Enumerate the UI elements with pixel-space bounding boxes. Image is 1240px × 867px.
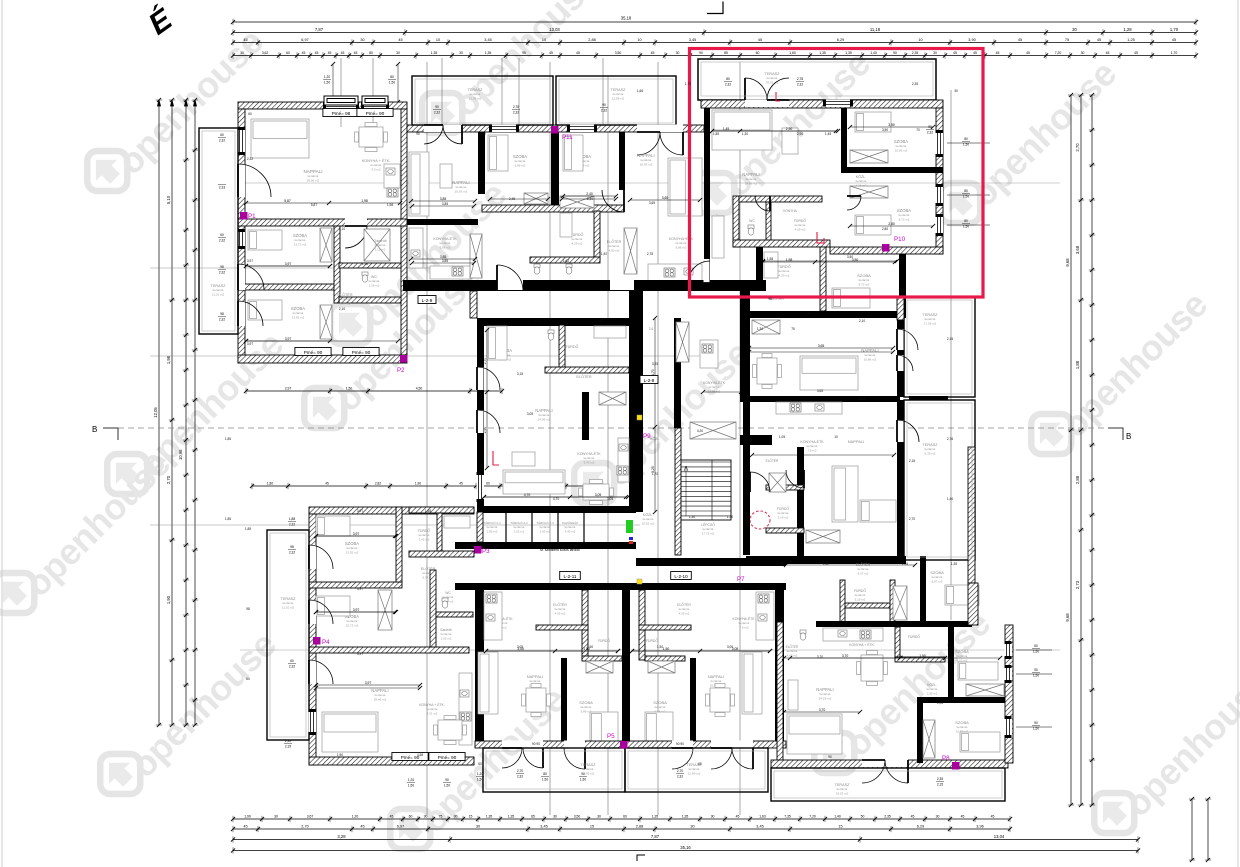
- svg-text:2,32: 2,32: [289, 665, 295, 669]
- svg-text:28,46 m2: 28,46 m2: [374, 697, 387, 701]
- svg-text:8,31 m2: 8,31 m2: [427, 711, 438, 715]
- svg-text:2,70: 2,70: [909, 517, 915, 521]
- svg-text:45: 45: [328, 51, 332, 55]
- svg-text:1,85: 1,85: [245, 527, 251, 531]
- svg-text:1,30: 1,30: [742, 132, 748, 136]
- svg-text:2,70: 2,70: [1075, 143, 1080, 152]
- svg-text:1,90: 1,90: [337, 753, 343, 757]
- svg-text:19,03 m2: 19,03 m2: [836, 791, 849, 795]
- svg-text:1,50: 1,50: [444, 784, 450, 788]
- svg-text:4,63 m2: 4,63 m2: [787, 653, 798, 657]
- svg-text:12,95 m2: 12,95 m2: [612, 96, 625, 100]
- svg-text:2,33: 2,33: [219, 186, 225, 190]
- svg-text:45: 45: [341, 51, 345, 55]
- svg-text:1,70: 1,70: [652, 472, 658, 476]
- svg-text:M. szintkénti közös tárolók: M. szintkénti közös tárolók: [540, 548, 580, 552]
- svg-text:1,90: 1,90: [415, 482, 421, 486]
- svg-text:45: 45: [973, 51, 977, 55]
- svg-text:80: 80: [543, 772, 547, 776]
- svg-text:Pmé= 90: Pmé= 90: [438, 755, 457, 760]
- svg-text:2,35: 2,35: [937, 777, 943, 781]
- svg-text:NAPPALI: NAPPALI: [848, 439, 865, 444]
- svg-text:30: 30: [459, 51, 463, 55]
- svg-text:1,15: 1,15: [362, 262, 368, 266]
- svg-text:Pmé= 90: Pmé= 90: [304, 350, 323, 355]
- svg-text:2,32: 2,32: [513, 111, 519, 115]
- svg-text:1,50: 1,50: [963, 225, 969, 229]
- svg-text:2,35: 2,35: [884, 815, 891, 819]
- svg-text:75: 75: [1065, 38, 1069, 42]
- svg-text:2,97: 2,97: [285, 387, 292, 391]
- svg-text:2,35: 2,35: [912, 82, 918, 86]
- svg-text:4,70: 4,70: [524, 493, 531, 497]
- svg-text:16,93 m2: 16,93 m2: [640, 162, 653, 166]
- svg-text:13,72 m2: 13,72 m2: [294, 242, 307, 246]
- svg-text:2,90: 2,90: [797, 132, 803, 136]
- svg-text:45: 45: [651, 51, 655, 55]
- svg-text:FÜRDŐ: FÜRDŐ: [908, 634, 920, 639]
- svg-text:29,96 m2: 29,96 m2: [745, 181, 758, 185]
- svg-text:3,05: 3,05: [527, 412, 533, 416]
- svg-text:15: 15: [838, 825, 842, 829]
- svg-text:1,10: 1,10: [339, 227, 345, 231]
- svg-text:5,87: 5,87: [284, 199, 291, 203]
- svg-text:2,76: 2,76: [947, 437, 953, 441]
- svg-text:3,15: 3,15: [517, 372, 523, 376]
- svg-text:90: 90: [482, 132, 486, 136]
- svg-text:1,45: 1,45: [723, 127, 730, 131]
- svg-text:1,20: 1,20: [408, 778, 414, 782]
- svg-text:ELŐTÉR: ELŐTÉR: [766, 458, 779, 463]
- svg-text:Pmé= 90: Pmé= 90: [366, 111, 385, 116]
- svg-text:1,50: 1,50: [542, 778, 548, 782]
- svg-text:4,29 m2: 4,29 m2: [779, 273, 790, 277]
- svg-text:3,97: 3,97: [247, 259, 253, 263]
- svg-text:1,63 m2: 1,63 m2: [540, 529, 551, 533]
- svg-text:11,01 m2: 11,01 m2: [282, 605, 295, 609]
- svg-text:2,12 m2: 2,12 m2: [375, 247, 386, 251]
- svg-text:85 10: 85 10: [496, 544, 504, 548]
- svg-text:FÜRDŐ: FÜRDŐ: [566, 344, 579, 349]
- svg-text:45: 45: [991, 815, 995, 819]
- svg-text:7,35: 7,35: [784, 815, 791, 819]
- svg-text:2,32: 2,32: [434, 111, 440, 115]
- svg-text:1,35: 1,35: [652, 815, 659, 819]
- svg-text:35,18: 35,18: [621, 16, 632, 21]
- svg-text:1,70: 1,70: [685, 82, 691, 86]
- svg-text:45: 45: [243, 38, 247, 42]
- svg-text:2,70: 2,70: [517, 769, 523, 773]
- svg-text:1,35: 1,35: [486, 815, 493, 819]
- svg-text:3,05: 3,05: [517, 645, 523, 649]
- svg-text:65: 65: [531, 815, 535, 819]
- svg-text:75: 75: [439, 815, 443, 819]
- svg-text:95: 95: [574, 544, 578, 548]
- svg-text:P4: P4: [322, 639, 330, 646]
- svg-text:1,35: 1,35: [682, 815, 689, 819]
- svg-text:12,95 m2: 12,95 m2: [688, 771, 701, 775]
- svg-text:2,70: 2,70: [677, 769, 683, 773]
- svg-text:P10: P10: [894, 236, 906, 243]
- svg-text:B: B: [92, 425, 97, 434]
- svg-text:1,50: 1,50: [663, 647, 670, 651]
- svg-text:2,02 m2: 2,02 m2: [441, 636, 452, 640]
- svg-text:Pmé= 90: Pmé= 90: [352, 350, 371, 355]
- svg-text:1,35 m2: 1,35 m2: [927, 691, 938, 695]
- svg-text:10: 10: [637, 38, 641, 42]
- svg-text:3,28: 3,28: [337, 834, 346, 839]
- svg-text:11,18: 11,18: [870, 27, 881, 32]
- svg-text:KONYHA: KONYHA: [783, 209, 797, 213]
- svg-text:30: 30: [954, 89, 958, 93]
- svg-text:70: 70: [916, 128, 920, 132]
- svg-text:2,15: 2,15: [947, 337, 953, 341]
- svg-text:3,90: 3,90: [968, 38, 975, 42]
- svg-text:98: 98: [246, 607, 250, 611]
- svg-text:1,05: 1,05: [779, 435, 785, 439]
- svg-text:60: 60: [220, 133, 224, 137]
- svg-text:30: 30: [936, 815, 940, 819]
- svg-text:P5: P5: [607, 733, 615, 740]
- svg-text:1,80: 1,80: [267, 482, 273, 486]
- svg-text:95: 95: [522, 51, 526, 55]
- svg-text:12,95 m2: 12,95 m2: [582, 771, 595, 775]
- svg-text:90: 90: [602, 103, 606, 107]
- svg-text:2,15: 2,15: [909, 459, 915, 463]
- svg-text:7,20: 7,20: [1055, 51, 1062, 55]
- svg-text:1,92: 1,92: [601, 252, 607, 256]
- svg-text:P8: P8: [942, 755, 950, 762]
- svg-text:2,32: 2,32: [517, 775, 523, 779]
- svg-text:45: 45: [390, 815, 394, 819]
- svg-text:1,35: 1,35: [431, 51, 438, 55]
- svg-text:45: 45: [1026, 51, 1030, 55]
- svg-text:2,48: 2,48: [509, 197, 515, 201]
- svg-text:13,03: 13,03: [549, 27, 560, 32]
- svg-text:3,58: 3,58: [859, 397, 865, 401]
- svg-text:1,35: 1,35: [819, 51, 826, 55]
- svg-text:1,50: 1,50: [963, 143, 969, 147]
- svg-text:1,25: 1,25: [1127, 38, 1134, 42]
- svg-text:2,35: 2,35: [912, 51, 919, 55]
- svg-text:1,60: 1,60: [789, 51, 796, 55]
- svg-text:1,88: 1,88: [289, 517, 295, 521]
- svg-text:80: 80: [369, 51, 373, 55]
- svg-text:2,80: 2,80: [888, 222, 895, 226]
- svg-text:12,95 m2: 12,95 m2: [469, 96, 482, 100]
- svg-text:L-2-9: L-2-9: [422, 298, 433, 303]
- svg-text:3,68: 3,68: [1075, 245, 1080, 254]
- svg-text:2,80: 2,80: [882, 227, 888, 231]
- svg-text:1,63: 1,63: [759, 815, 766, 819]
- svg-text:30: 30: [933, 51, 937, 55]
- svg-text:30: 30: [360, 38, 364, 42]
- svg-text:KÖZL.: KÖZL.: [650, 437, 660, 441]
- svg-text:90: 90: [445, 778, 449, 782]
- svg-text:1,70: 1,70: [1170, 27, 1179, 32]
- svg-text:15: 15: [469, 815, 473, 819]
- svg-text:90 90: 90 90: [676, 742, 684, 746]
- svg-text:45: 45: [911, 815, 915, 819]
- svg-text:60: 60: [409, 815, 413, 819]
- svg-text:1,40: 1,40: [870, 51, 877, 55]
- svg-text:1,50: 1,50: [1033, 674, 1039, 678]
- svg-text:1,50: 1,50: [657, 645, 663, 649]
- svg-text:3,70: 3,70: [842, 654, 849, 658]
- svg-text:1,50: 1,50: [919, 654, 926, 658]
- svg-text:30: 30: [1072, 27, 1077, 32]
- svg-text:1,85: 1,85: [713, 132, 719, 136]
- svg-text:98: 98: [290, 545, 294, 549]
- svg-text:1,18 m2: 1,18 m2: [369, 283, 380, 287]
- svg-text:P9: P9: [643, 433, 651, 440]
- svg-text:78,03 m2: 78,03 m2: [766, 80, 779, 84]
- svg-text:2,10: 2,10: [859, 319, 865, 323]
- svg-text:3,45: 3,45: [540, 825, 547, 829]
- svg-text:1,62 m2: 1,62 m2: [514, 529, 525, 533]
- svg-text:3,42 m2: 3,42 m2: [419, 537, 430, 541]
- svg-text:2,10: 2,10: [339, 307, 345, 311]
- svg-text:7,6 m2: 7,6 m2: [739, 625, 749, 629]
- svg-text:1,05: 1,05: [937, 701, 943, 705]
- svg-text:KONYHA + ÉTK.: KONYHA + ÉTK.: [849, 642, 875, 647]
- svg-text:3,85: 3,85: [442, 202, 448, 206]
- svg-text:90: 90: [828, 755, 832, 759]
- svg-text:30: 30: [676, 51, 680, 55]
- svg-text:75: 75: [791, 327, 795, 331]
- svg-text:3,25: 3,25: [652, 362, 658, 366]
- svg-text:1,30: 1,30: [757, 327, 763, 331]
- svg-text:3,62: 3,62: [262, 51, 269, 55]
- svg-text:90: 90: [928, 125, 932, 129]
- svg-text:1,45: 1,45: [825, 132, 831, 136]
- svg-text:60: 60: [286, 51, 290, 55]
- svg-text:3,97: 3,97: [285, 337, 292, 341]
- svg-text:1,50: 1,50: [1033, 650, 1039, 654]
- svg-text:45: 45: [1172, 38, 1176, 42]
- svg-text:4,50 m2: 4,50 m2: [609, 248, 620, 252]
- svg-text:1,62: 1,62: [823, 562, 829, 566]
- svg-text:2,40: 2,40: [587, 197, 593, 201]
- svg-text:90: 90: [699, 51, 703, 55]
- svg-text:9,3 m2: 9,3 m2: [371, 167, 381, 171]
- svg-text:3,05: 3,05: [607, 497, 613, 501]
- svg-text:1,35: 1,35: [951, 562, 957, 566]
- svg-text:3,65: 3,65: [662, 196, 669, 200]
- svg-text:1,50: 1,50: [963, 195, 969, 199]
- svg-text:FÜRDŐ: FÜRDŐ: [598, 638, 610, 643]
- svg-text:45: 45: [961, 815, 965, 819]
- svg-text:L-2-11: L-2-11: [564, 574, 577, 579]
- svg-text:3,45: 3,45: [689, 38, 696, 42]
- svg-text:60: 60: [486, 482, 490, 486]
- svg-text:8,72 m2: 8,72 m2: [859, 282, 870, 286]
- svg-text:9,86 m2: 9,86 m2: [515, 163, 526, 167]
- svg-text:1,90: 1,90: [166, 595, 171, 604]
- svg-text:3,97: 3,97: [357, 652, 363, 656]
- svg-text:1,85: 1,85: [225, 517, 231, 521]
- svg-text:55: 55: [540, 544, 544, 548]
- svg-text:15: 15: [590, 825, 594, 829]
- svg-text:2,70: 2,70: [301, 825, 308, 829]
- svg-text:12,05: 12,05: [153, 407, 158, 418]
- svg-text:45: 45: [360, 825, 364, 829]
- svg-text:90: 90: [1034, 721, 1038, 725]
- svg-text:3,50: 3,50: [615, 51, 622, 55]
- svg-text:35,16: 35,16: [680, 845, 691, 850]
- svg-text:80: 80: [964, 219, 968, 223]
- svg-text:FÜRDŐ: FÜRDŐ: [646, 638, 658, 643]
- svg-text:90: 90: [1034, 668, 1038, 672]
- svg-text:30: 30: [597, 815, 601, 819]
- svg-text:98: 98: [220, 265, 224, 269]
- svg-text:P2: P2: [397, 367, 405, 374]
- svg-text:6,35 m2: 6,35 m2: [925, 451, 936, 455]
- svg-text:3,97: 3,97: [247, 342, 253, 346]
- svg-text:2,32: 2,32: [677, 775, 683, 779]
- svg-text:45: 45: [398, 38, 402, 42]
- svg-text:10,62 m2: 10,62 m2: [642, 521, 655, 525]
- svg-text:1,70: 1,70: [651, 369, 655, 376]
- svg-text:6,86 m2: 6,86 m2: [676, 245, 687, 249]
- svg-text:80: 80: [726, 77, 730, 81]
- svg-text:2,32: 2,32: [219, 239, 225, 243]
- svg-text:1,35: 1,35: [508, 815, 515, 819]
- svg-text:10: 10: [918, 38, 922, 42]
- svg-text:3,67: 3,67: [307, 815, 314, 819]
- svg-text:45: 45: [576, 51, 580, 55]
- svg-text:1,70: 1,70: [1171, 51, 1178, 55]
- svg-text:1,62: 1,62: [563, 259, 569, 263]
- svg-text:8,72 m2: 8,72 m2: [899, 217, 910, 221]
- svg-text:1,30: 1,30: [727, 515, 733, 519]
- svg-text:30: 30: [454, 815, 458, 819]
- svg-text:4,35 m2: 4,35 m2: [679, 611, 690, 615]
- svg-text:1,80: 1,80: [805, 312, 811, 316]
- svg-text:P3: P3: [482, 548, 490, 555]
- svg-text:90: 90: [893, 51, 897, 55]
- svg-text:2,15: 2,15: [285, 745, 291, 749]
- svg-text:3,70: 3,70: [535, 319, 541, 323]
- svg-text:2,32: 2,32: [219, 271, 225, 275]
- svg-text:1,40: 1,40: [947, 497, 953, 501]
- svg-text:1,58: 1,58: [767, 257, 773, 261]
- svg-text:2,82: 2,82: [375, 482, 381, 486]
- svg-text:45: 45: [459, 482, 463, 486]
- svg-text:2,32: 2,32: [927, 131, 933, 135]
- svg-text:Pmé= 98: Pmé= 98: [332, 111, 351, 116]
- svg-text:B: B: [1126, 432, 1131, 441]
- svg-text:1,35: 1,35: [902, 562, 908, 566]
- svg-text:60: 60: [220, 233, 224, 237]
- svg-text:3,97: 3,97: [353, 608, 360, 612]
- svg-text:4,29 m2: 4,29 m2: [572, 241, 583, 245]
- svg-text:2,32: 2,32: [289, 551, 295, 555]
- svg-text:15,73 m2: 15,73 m2: [346, 623, 359, 627]
- svg-text:3,65: 3,65: [818, 344, 825, 348]
- svg-text:30: 30: [690, 825, 694, 829]
- svg-text:1,98: 1,98: [387, 203, 393, 207]
- svg-text:2,88: 2,88: [636, 825, 643, 829]
- svg-text:WC: WC: [749, 219, 755, 223]
- svg-text:1,35: 1,35: [845, 51, 852, 55]
- svg-text:3,65: 3,65: [649, 201, 655, 205]
- svg-text:2,32: 2,32: [289, 523, 295, 527]
- svg-text:45: 45: [354, 51, 358, 55]
- svg-text:85: 85: [724, 51, 728, 55]
- svg-text:60: 60: [290, 659, 294, 663]
- svg-text:30: 30: [424, 815, 428, 819]
- svg-text:1,35: 1,35: [777, 562, 783, 566]
- svg-text:2,32: 2,32: [725, 83, 731, 87]
- svg-text:6,29: 6,29: [837, 38, 844, 42]
- svg-text:45: 45: [1097, 38, 1101, 42]
- svg-text:2-6: 2-6: [649, 327, 654, 331]
- svg-text:98: 98: [220, 312, 224, 316]
- svg-text:30: 30: [1081, 51, 1085, 55]
- svg-text:1,20: 1,20: [352, 815, 359, 819]
- svg-text:3,97: 3,97: [357, 587, 363, 591]
- svg-text:1,50: 1,50: [580, 778, 586, 782]
- svg-text:7,87: 7,87: [315, 27, 324, 32]
- svg-text:6,97: 6,97: [397, 825, 404, 829]
- svg-text:3,19 m2: 3,19 m2: [778, 515, 789, 519]
- svg-text:1,28: 1,28: [1123, 27, 1132, 32]
- svg-text:2,70: 2,70: [483, 358, 487, 365]
- svg-text:30: 30: [240, 51, 244, 55]
- svg-text:6,86 m2: 6,86 m2: [440, 245, 451, 249]
- svg-text:16,86 m2: 16,86 m2: [864, 357, 877, 361]
- svg-text:3,50: 3,50: [888, 123, 895, 127]
- svg-text:3,45: 3,45: [484, 38, 491, 42]
- svg-text:P11: P11: [562, 134, 573, 141]
- svg-text:4,29 m2: 4,29 m2: [795, 227, 806, 231]
- svg-text:10: 10: [542, 38, 546, 42]
- svg-text:3,05: 3,05: [727, 645, 733, 649]
- svg-text:80: 80: [964, 189, 968, 193]
- svg-text:1,85 m2: 1,85 m2: [487, 529, 498, 533]
- svg-text:45: 45: [758, 38, 762, 42]
- svg-text:L-2-8: L-2-8: [644, 378, 655, 383]
- svg-text:30: 30: [396, 51, 400, 55]
- svg-text:9,68: 9,68: [1065, 258, 1070, 267]
- svg-text:3,70: 3,70: [817, 655, 823, 659]
- svg-text:11,01 m2: 11,01 m2: [212, 292, 225, 296]
- svg-text:3,50: 3,50: [882, 128, 888, 132]
- svg-text:4,35 m2: 4,35 m2: [555, 611, 566, 615]
- svg-text:2,90: 2,90: [786, 127, 793, 131]
- svg-text:2,32: 2,32: [247, 157, 253, 161]
- svg-text:2,90: 2,90: [483, 427, 487, 434]
- svg-text:4,20: 4,20: [697, 429, 703, 433]
- svg-text:1,85: 1,85: [225, 437, 231, 441]
- svg-text:30: 30: [553, 815, 557, 819]
- svg-text:13,04: 13,04: [994, 834, 1005, 839]
- svg-text:60: 60: [246, 677, 250, 681]
- svg-text:6,29: 6,29: [917, 825, 924, 829]
- svg-text:1,66: 1,66: [637, 89, 643, 93]
- svg-text:45: 45: [1018, 38, 1022, 42]
- svg-text:2,32: 2,32: [285, 739, 291, 743]
- svg-text:24,99 m2: 24,99 m2: [538, 417, 551, 421]
- svg-text:9,43 m2: 9,43 m2: [584, 460, 595, 464]
- svg-text:2,78: 2,78: [513, 105, 519, 109]
- svg-text:3,19 m2: 3,19 m2: [855, 597, 866, 601]
- svg-text:45: 45: [1106, 51, 1110, 55]
- svg-text:1,35: 1,35: [485, 51, 492, 55]
- svg-text:6,97: 6,97: [301, 38, 308, 42]
- svg-text:50: 50: [861, 815, 865, 819]
